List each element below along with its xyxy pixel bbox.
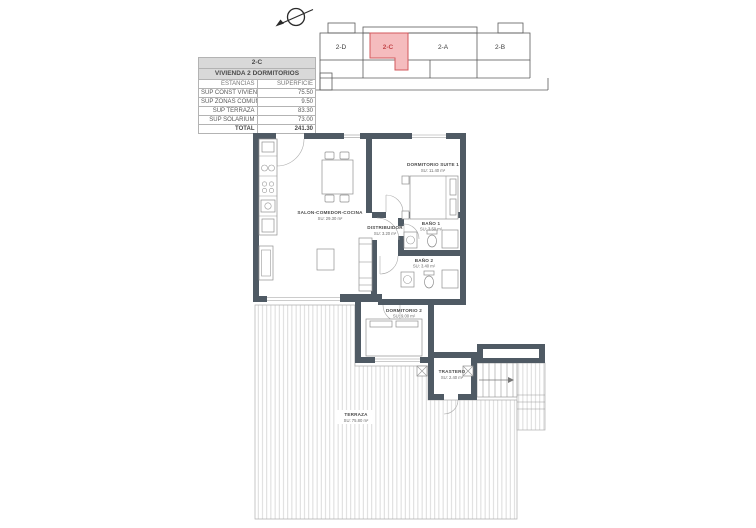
col-header-superficie: SUPERFICIE <box>257 80 316 89</box>
unit-type-title: VIVIENDA 2 DORMITORIOS <box>199 69 316 80</box>
bed-suite <box>402 176 458 219</box>
col-header-estancias: ESTANCIAS <box>199 80 258 89</box>
surface-table: 2-C VIVIENDA 2 DORMITORIOS ESTANCIAS SUP… <box>198 57 316 134</box>
table-row: SUP TERRAZA 83.30 <box>199 107 316 116</box>
floor-plan: SALON-COMEDOR-COCINA SU: 29.30 m² DORMIT… <box>248 125 558 525</box>
svg-text:SU: 3.40 m²: SU: 3.40 m² <box>413 264 436 269</box>
svg-text:SU: 11.40 m²: SU: 11.40 m² <box>421 168 446 173</box>
svg-text:BAÑO 2: BAÑO 2 <box>415 257 434 263</box>
svg-text:SALON-COMEDOR-COCINA: SALON-COMEDOR-COCINA <box>297 210 363 215</box>
row-value: 9.50 <box>257 98 316 107</box>
kitchen-counter <box>259 139 277 235</box>
stairs <box>477 363 517 397</box>
svg-text:TERRAZA: TERRAZA <box>344 412 368 417</box>
sideboard <box>259 246 273 280</box>
table-row: SUP ZONAS COMUNES 9.50 <box>199 98 316 107</box>
room-label-distribuidor: DISTRIBUIDOR SU: 3.20 m² <box>367 225 403 236</box>
dining-table <box>322 152 353 202</box>
key-plan: 2-D 2-C 2-A 2-B <box>313 10 553 110</box>
row-label: SUP CONST VIVIENDA <box>199 89 258 98</box>
unit-code: 2-C <box>199 58 316 69</box>
room-label-dorm2: DORMITORIO 2 SU: 9.00 m² <box>386 308 422 319</box>
bathroom1-fixtures <box>404 230 458 248</box>
bed-dorm2 <box>366 319 422 356</box>
room-label-terraza: TERRAZA SU: 75.80 m² <box>337 410 375 424</box>
room-label-bano1: BAÑO 1 SU: 3.50 m² <box>420 220 443 232</box>
north-arrow-icon <box>272 2 318 34</box>
svg-text:SU: 9.00 m²: SU: 9.00 m² <box>393 314 416 319</box>
svg-text:SU: 29.30 m²: SU: 29.30 m² <box>318 216 343 221</box>
row-label: SUP TERRAZA <box>199 107 258 116</box>
svg-text:DISTRIBUIDOR: DISTRIBUIDOR <box>367 225 403 230</box>
svg-text:TRASTERO: TRASTERO <box>439 369 466 374</box>
solarium-landing <box>517 363 545 430</box>
svg-text:DORMITORIO 2: DORMITORIO 2 <box>386 308 422 313</box>
room-label-bano2: BAÑO 2 SU: 3.40 m² <box>413 257 436 269</box>
svg-text:DORMITORIO SUITE 1: DORMITORIO SUITE 1 <box>407 162 459 167</box>
room-label-trastero: TRASTERO SU: 2.40 m² <box>439 369 466 380</box>
sofa <box>359 238 372 291</box>
room-label-suite1: DORMITORIO SUITE 1 SU: 11.40 m² <box>407 162 459 173</box>
row-value: 73.00 <box>257 116 316 125</box>
keyplan-unit-label-2b[interactable]: 2-B <box>495 44 505 51</box>
svg-text:SU: 2.40 m²: SU: 2.40 m² <box>441 375 464 380</box>
row-value: 83.30 <box>257 107 316 116</box>
table-row: SUP CONST VIVIENDA 75.50 <box>199 89 316 98</box>
floorplan-page: 2-D 2-C 2-A 2-B 2-C VIVIENDA 2 DORMITORI… <box>0 0 756 528</box>
row-label: SUP ZONAS COMUNES <box>199 98 258 107</box>
svg-text:SU: 3.50 m²: SU: 3.50 m² <box>420 227 443 232</box>
svg-text:SU: 75.80 m²: SU: 75.80 m² <box>344 418 369 423</box>
keyplan-unit-2c-highlight[interactable] <box>370 33 408 70</box>
table-row: SUP SOLARIUM 73.00 <box>199 116 316 125</box>
row-value: 75.50 <box>257 89 316 98</box>
coffee-table <box>317 249 334 270</box>
row-label: SUP SOLARIUM <box>199 116 258 125</box>
keyplan-unit-label-2d[interactable]: 2-D <box>336 44 347 51</box>
room-label-salon: SALON-COMEDOR-COCINA SU: 29.30 m² <box>297 210 363 221</box>
keyplan-unit-label-2a[interactable]: 2-A <box>438 44 449 51</box>
bathroom2-fixtures <box>401 270 458 288</box>
keyplan-unit-label-2c[interactable]: 2-C <box>383 44 394 51</box>
svg-text:SU: 3.20 m²: SU: 3.20 m² <box>374 231 397 236</box>
svg-text:BAÑO 1: BAÑO 1 <box>422 220 441 226</box>
